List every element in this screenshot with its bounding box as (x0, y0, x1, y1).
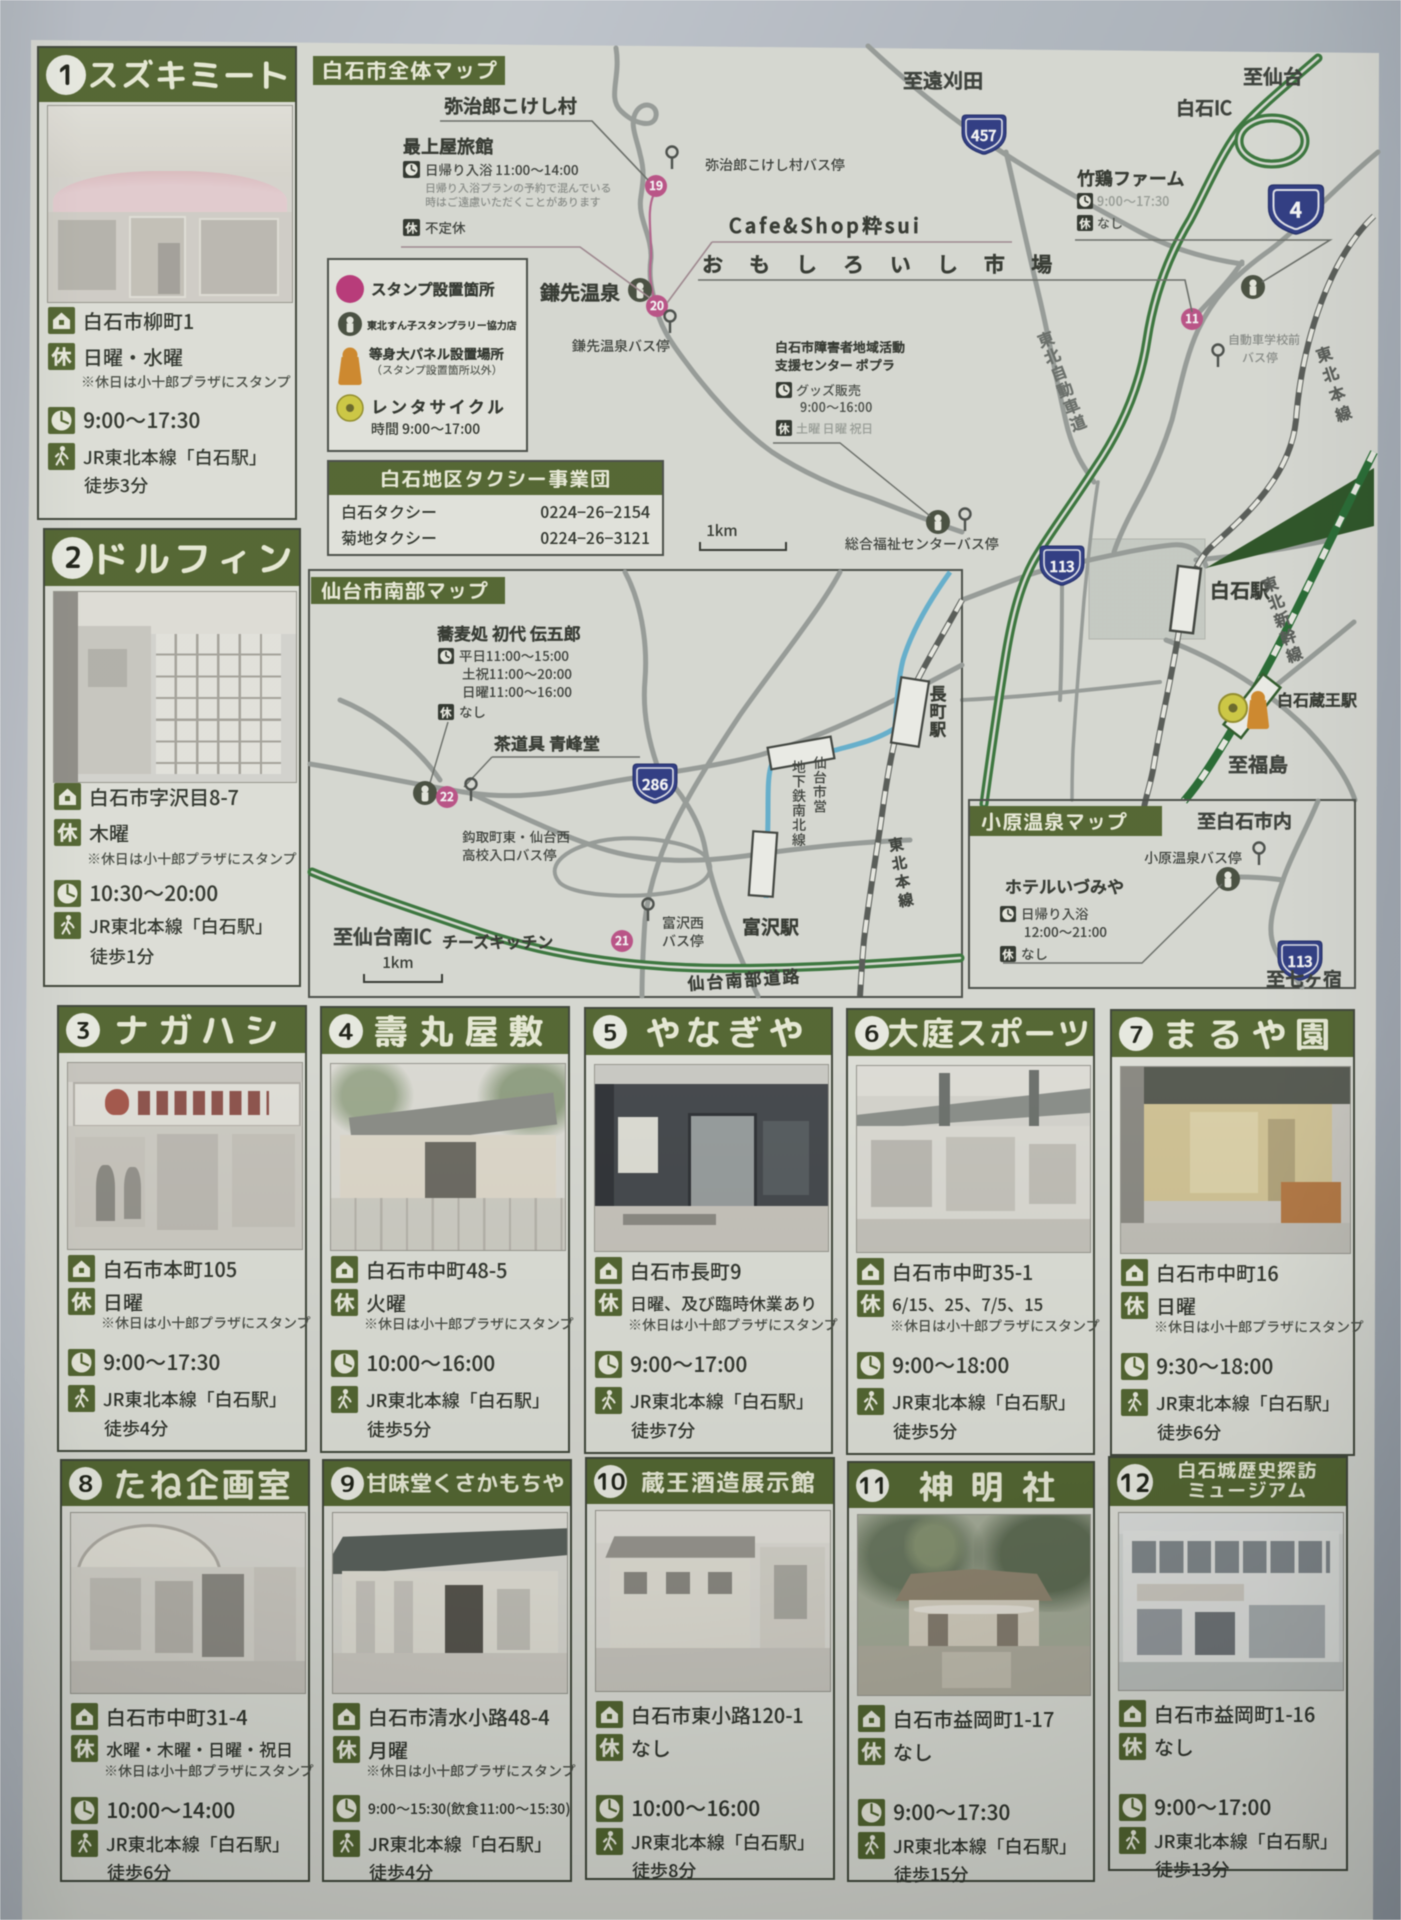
svg-text:Cafe&Shop粋sui: Cafe&Shop粋sui (729, 210, 922, 239)
svg-text:弥治郎こけし村: 弥治郎こけし村 (444, 92, 577, 119)
svg-text:9:00〜17:30: 9:00〜17:30 (1097, 191, 1170, 210)
svg-text:自動車学校前: 自動車学校前 (1228, 331, 1300, 348)
svg-text:休: 休 (860, 1290, 881, 1317)
svg-text:1km: 1km (382, 952, 413, 973)
svg-text:白石蔵王駅: 白石蔵王駅 (1277, 687, 1358, 711)
svg-text:鎌先温泉バス停: 鎌先温泉バス停 (572, 336, 670, 356)
svg-text:仙台市南部マップ: 仙台市南部マップ (321, 577, 489, 605)
svg-text:おもしろいし市場: おもしろいし市場 (702, 249, 1078, 279)
svg-text:バス停: バス停 (662, 931, 704, 951)
svg-text:4: 4 (1290, 194, 1303, 225)
svg-text:時はご遠慮いただくことがあります: 時はご遠慮いただくことがあります (425, 194, 601, 210)
svg-text:至福島: 至福島 (1228, 749, 1288, 778)
svg-text:白石市全体マップ: 白石市全体マップ (322, 55, 498, 85)
svg-text:線: 線 (792, 830, 806, 850)
svg-text:なし: なし (1021, 943, 1048, 963)
svg-text:営: 営 (813, 797, 827, 817)
svg-text:富沢駅: 富沢駅 (742, 913, 799, 940)
svg-text:日曜11:00〜16:00: 日曜11:00〜16:00 (462, 681, 572, 701)
svg-text:土祝11:00〜20:00: 土祝11:00〜20:00 (462, 663, 572, 683)
svg-text:平日11:00〜15:00: 平日11:00〜15:00 (459, 645, 569, 665)
svg-text:至白石市内: 至白石市内 (1197, 807, 1292, 834)
svg-text:等身大パネル設置場所: 等身大パネル設置場所 (368, 343, 504, 363)
svg-text:不定休: 不定休 (425, 217, 466, 237)
svg-text:286: 286 (642, 774, 668, 795)
svg-text:最上屋旅館: 最上屋旅館 (403, 133, 493, 159)
svg-text:日帰り入浴 11:00〜14:00: 日帰り入浴 11:00〜14:00 (425, 159, 579, 179)
svg-text:休: 休 (1124, 1292, 1145, 1319)
svg-text:休: 休 (57, 819, 78, 846)
svg-text:休: 休 (51, 343, 72, 370)
svg-text:線: 線 (896, 888, 916, 912)
svg-text:至遠刈田: 至遠刈田 (903, 65, 983, 94)
svg-text:至仙台南IC: 至仙台南IC (333, 921, 432, 950)
svg-text:休: 休 (861, 1738, 882, 1765)
svg-text:457: 457 (971, 125, 997, 146)
svg-text:19: 19 (649, 177, 663, 194)
svg-text:小原温泉バス停: 小原温泉バス停 (1144, 848, 1242, 868)
svg-text:休: 休 (404, 219, 418, 237)
svg-text:12:00〜21:00: 12:00〜21:00 (1024, 921, 1107, 941)
svg-text:小原温泉マップ: 小原温泉マップ (981, 808, 1128, 836)
svg-text:なし: なし (459, 701, 486, 721)
svg-text:時間 9:00〜17:00: 時間 9:00〜17:00 (371, 419, 480, 439)
svg-text:富沢西: 富沢西 (662, 913, 704, 933)
svg-text:休: 休 (599, 1734, 620, 1761)
svg-text:竹鶏ファーム: 竹鶏ファーム (1076, 165, 1184, 191)
svg-text:休: 休 (439, 705, 452, 721)
svg-text:休: 休 (598, 1289, 619, 1316)
svg-text:土曜 日曜 祝日: 土曜 日曜 祝日 (796, 420, 873, 437)
svg-text:白石IC: 白石IC (1176, 94, 1233, 121)
svg-text:休: 休 (71, 1288, 92, 1315)
svg-text:21: 21 (615, 932, 629, 949)
svg-text:茶道具 青峰堂: 茶道具 青峰堂 (493, 730, 600, 755)
svg-text:駅: 駅 (929, 715, 947, 740)
svg-text:東北すん子スタンプラリー協力店: 東北すん子スタンプラリー協力店 (366, 317, 517, 332)
svg-text:休: 休 (1078, 216, 1091, 232)
svg-text:休: 休 (336, 1736, 357, 1763)
svg-text:休: 休 (1001, 947, 1014, 963)
svg-text:1km: 1km (706, 520, 737, 541)
svg-text:22: 22 (440, 788, 455, 805)
svg-text:休: 休 (1122, 1733, 1143, 1760)
svg-text:総合福祉センターバス停: 総合福祉センターバス停 (845, 534, 999, 554)
svg-text:鈎取町東・仙台西: 鈎取町東・仙台西 (462, 826, 570, 846)
svg-text:休: 休 (777, 421, 790, 437)
svg-text:スタンプ設置箇所: スタンプ設置箇所 (371, 278, 495, 300)
svg-text:白石市障害者地域活動: 白石市障害者地域活動 (775, 337, 905, 356)
svg-text:線: 線 (1331, 399, 1355, 427)
svg-text:9:00〜16:00: 9:00〜16:00 (800, 397, 873, 416)
svg-text:高校入口バス停: 高校入口バス停 (462, 844, 557, 864)
svg-text:バス停: バス停 (1242, 349, 1278, 366)
svg-text:弥治郎こけし村バス停: 弥治郎こけし村バス停 (705, 155, 845, 175)
svg-text:支援センター ポプラ: 支援センター ポプラ (774, 355, 895, 374)
svg-text:11: 11 (1185, 310, 1199, 327)
svg-text:至七ヶ宿: 至七ヶ宿 (1266, 965, 1342, 992)
svg-text:レンタサイクル: レンタサイクル (371, 394, 507, 418)
svg-text:日帰り入浴: 日帰り入浴 (1021, 903, 1089, 923)
svg-text:（スタンプ設置箇所以外）: （スタンプ設置箇所以外） (371, 362, 503, 378)
svg-text:20: 20 (650, 297, 664, 314)
svg-text:鎌先温泉: 鎌先温泉 (539, 277, 621, 306)
svg-text:なし: なし (1097, 213, 1123, 232)
svg-text:至仙台: 至仙台 (1243, 61, 1303, 90)
svg-text:113: 113 (1049, 556, 1075, 577)
svg-text:休: 休 (334, 1289, 355, 1316)
svg-text:ホテルいづみや: ホテルいづみや (1005, 873, 1124, 898)
svg-text:休: 休 (74, 1735, 95, 1762)
svg-text:チーズキッチン: チーズキッチン (442, 929, 553, 953)
svg-text:蕎麦処 初代 伝五郎: 蕎麦処 初代 伝五郎 (436, 620, 581, 645)
